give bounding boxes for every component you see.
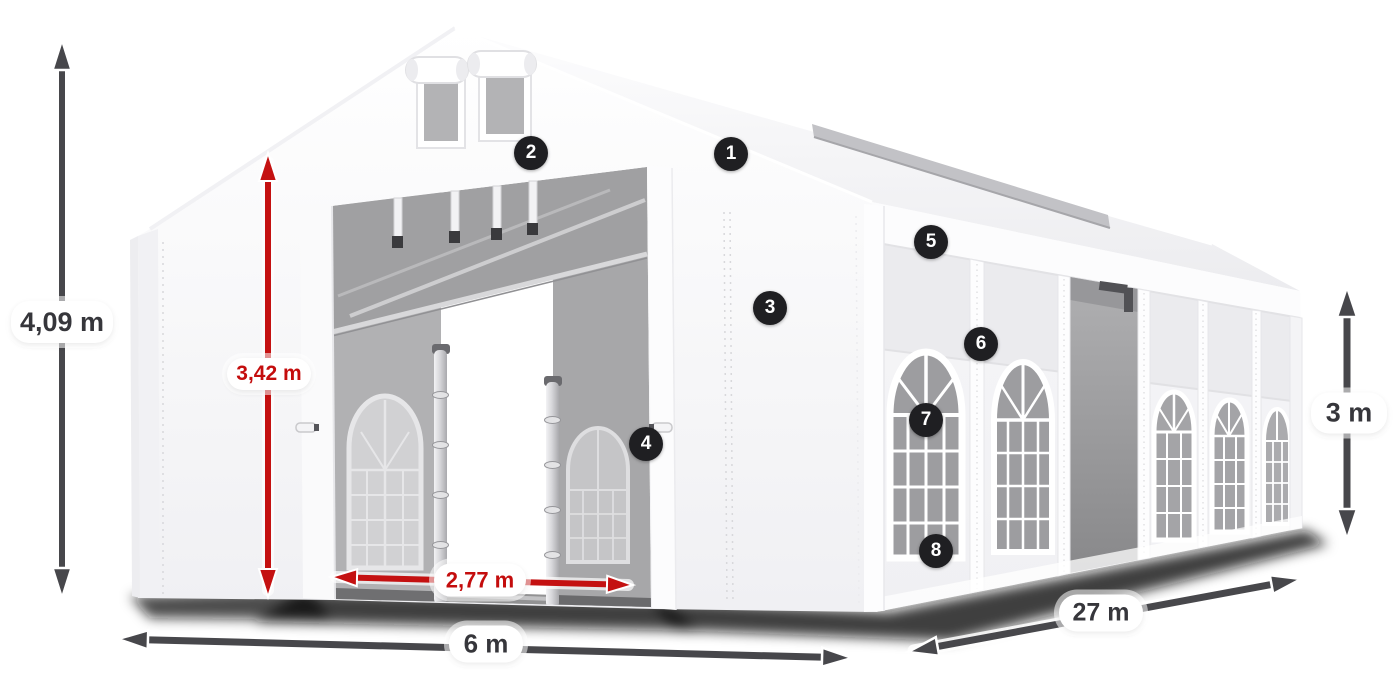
callout-badge-8[interactable]: 8 — [919, 534, 953, 568]
callout-badge-7[interactable]: 7 — [909, 403, 943, 437]
interior-window — [349, 396, 421, 568]
door-handle[interactable] — [296, 423, 319, 432]
dimension-label-side-wall-height: 3 m — [1311, 393, 1387, 434]
side-entrance-opening — [1070, 277, 1138, 573]
tent-illustration — [0, 0, 1400, 700]
arch-window — [1154, 392, 1194, 540]
tent-dimension-diagram: 4,09 m 3,42 m 2,77 m 6 m 27 m 3 m 1 2 3 … — [0, 0, 1400, 700]
interior-window — [568, 428, 628, 562]
callout-badge-3[interactable]: 3 — [753, 291, 787, 325]
callout-badge-5[interactable]: 5 — [914, 225, 948, 259]
dimension-label-door-height: 3,42 m — [227, 358, 311, 390]
dimension-label-side-length: 27 m — [1059, 595, 1143, 632]
arch-window — [1264, 409, 1290, 524]
dimension-label-door-width: 2,77 m — [434, 564, 526, 597]
callout-badge-6[interactable]: 6 — [964, 327, 998, 361]
arch-window — [1212, 400, 1247, 532]
arch-window — [890, 352, 962, 558]
dimension-label-total-height: 4,09 m — [11, 301, 113, 343]
callout-badge-2[interactable]: 2 — [514, 136, 548, 170]
dimension-label-front-width: 6 m — [449, 626, 523, 663]
callout-badge-4[interactable]: 4 — [629, 427, 663, 461]
arch-window — [994, 362, 1052, 552]
callout-badge-1[interactable]: 1 — [714, 137, 748, 171]
